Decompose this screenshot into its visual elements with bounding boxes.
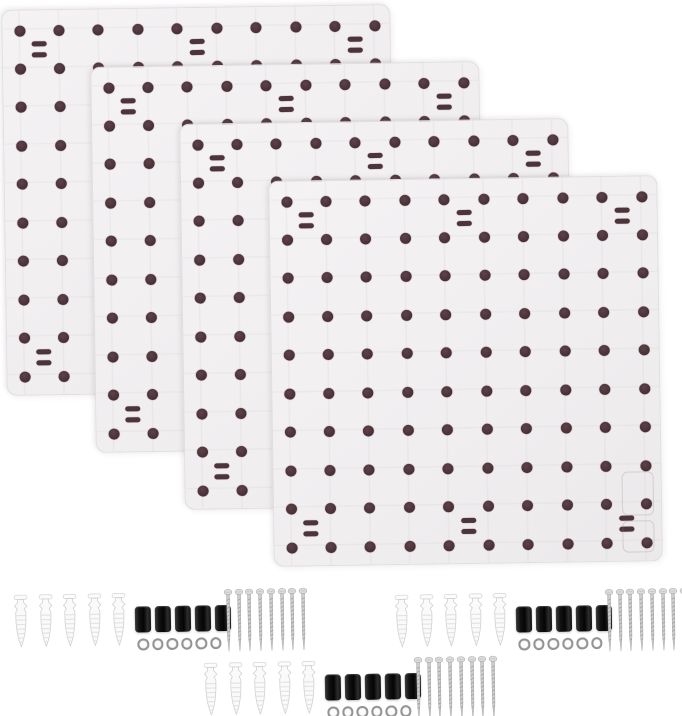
peg-hole [558,269,569,280]
peg-hole [323,388,334,399]
peg-hole [323,349,334,360]
peg-slot [437,105,452,110]
peg-hole [261,80,272,91]
spacer [365,674,381,700]
peg-hole [321,234,332,245]
peg-hole [559,307,570,318]
peg-slot [619,516,634,521]
screw [256,588,266,652]
wall-anchor [394,594,409,647]
peg-hole [600,460,611,471]
peg-hole [402,386,413,397]
washer [518,638,530,650]
washer [137,638,149,650]
peg-slot [210,156,225,161]
screw [245,589,255,653]
peg-hole [560,384,571,395]
wall-anchor [468,593,483,646]
peg-hole [193,216,204,227]
peg-hole [233,254,244,265]
peg-hole [640,460,651,471]
peg-hole [403,463,414,474]
peg-hole [521,423,532,434]
peg-hole [400,271,411,282]
peg-slot [614,208,629,213]
peg-hole [325,541,336,552]
peg-hole [340,79,351,90]
peg-hole [483,501,494,512]
peg-hole [234,331,245,342]
peg-hole [520,346,531,357]
screw [435,657,445,716]
peg-slot [190,50,205,55]
wall-anchor [492,593,507,646]
peg-hole [15,102,26,113]
peg-hole [195,370,206,381]
peg-slot [210,167,225,172]
peg-hole [562,499,573,510]
peg-hole [56,178,67,189]
peg-hole [56,217,67,228]
peg-hole [16,140,27,151]
peg-hole [601,499,612,510]
peg-hole [286,542,297,553]
peg-hole [638,345,649,356]
washer [533,638,545,650]
peg-slot [526,162,541,167]
peg-hole [404,540,415,551]
screw [288,588,298,652]
peg-hole [558,230,569,241]
peg-hole [103,120,114,131]
peg-hole [285,504,296,515]
wall-anchor [301,661,316,714]
screw [626,589,636,653]
peg-hole [458,77,469,88]
peg-slot [461,518,476,523]
peg-hole [232,215,243,226]
peg-hole [235,408,246,419]
peg-slot [457,221,472,226]
peg-hole [147,389,158,400]
peg-hole [300,79,311,90]
peg-hole [418,77,429,88]
spacer [516,606,532,632]
spacer [155,606,171,632]
peg-hole [57,255,68,266]
peg-hole [518,193,529,204]
peg-slot [215,474,230,479]
wall-anchor [203,662,218,715]
peg-hole [196,408,207,419]
peg-hole [18,294,29,305]
peg-hole [444,540,455,551]
peg-hole [192,177,203,188]
washer [591,637,603,649]
washer [385,705,397,716]
peg-hole [16,179,27,190]
mounting-kit-1 [13,586,324,659]
peg-slot [368,164,383,169]
peg-hole [598,268,609,279]
peg-hole [559,346,570,357]
spacer [385,673,401,699]
peg-hole [324,426,335,437]
peg-hole [442,424,453,435]
spacer [325,674,341,700]
peg-hole [145,235,156,246]
peg-hole [519,308,530,319]
peg-hole [53,24,64,35]
washer [166,638,178,650]
peg-slot [279,96,294,101]
spacer [556,606,572,632]
peg-hole [144,197,155,208]
peg-hole [54,101,65,112]
peg-hole [197,485,208,496]
peg-hole [194,293,205,304]
peg-hole [482,424,493,435]
peg-hole [523,539,534,550]
screw [413,657,423,716]
washer [576,637,588,649]
spacer [576,605,592,631]
peg-hole [14,63,25,74]
spacer [175,606,191,632]
peg-hole [481,385,492,396]
peg-slot [299,224,314,229]
peg-hole [195,331,206,342]
screw [478,656,488,716]
peg-hole [234,292,245,303]
peg-hole [365,541,376,552]
washer [152,638,164,650]
peg-hole [439,232,450,243]
peg-slot [457,210,472,215]
peg-hole [143,120,154,131]
peg-hole [364,464,375,475]
peg-hole [350,137,361,148]
peg-slot [36,349,51,354]
wall-anchor [443,594,458,647]
screw [615,589,625,653]
wall-anchor [277,661,292,714]
peg-hole [441,347,452,358]
peg-slot [368,153,383,158]
peg-hole [364,502,375,513]
peg-hole [142,81,153,92]
peg-hole [145,274,156,285]
molded-ridge [622,520,654,552]
peg-hole [597,230,608,241]
peg-hole [507,134,518,145]
screw [637,588,647,652]
peg-hole [196,447,207,458]
mounting-kit-3 [203,654,514,716]
peg-hole [17,217,28,228]
peg-hole [320,195,331,206]
pegboard-panel-4 [268,175,663,567]
peg-hole [132,23,143,34]
washer [400,705,412,716]
peg-slot [121,99,136,104]
peg-hole [478,193,489,204]
peg-slot [32,53,47,58]
peg-hole [360,195,371,206]
peg-hole [282,273,293,284]
peg-slot [214,463,229,468]
peg-hole [211,22,222,33]
peg-hole [283,350,294,361]
peg-hole [443,501,454,512]
peg-hole [602,537,613,548]
peg-hole [322,311,333,322]
peg-slot [347,37,362,42]
peg-hole [146,351,157,362]
screw [446,656,456,716]
washer [342,706,354,716]
peg-hole [192,139,203,150]
peg-hole [106,313,117,324]
screw [647,588,657,652]
peg-hole [232,177,243,188]
spacer [345,674,361,700]
peg-hole [290,21,301,32]
peg-hole [105,236,116,247]
screw [424,657,434,716]
peg-hole [283,311,294,322]
peg-hole [58,332,69,343]
spacer [536,606,552,632]
peg-slot [32,42,47,47]
screw [467,656,477,716]
peg-hole [637,268,648,279]
peg-hole [235,369,246,380]
peg-hole [479,232,490,243]
screw [658,588,668,652]
peg-hole [440,271,451,282]
screw [223,589,233,653]
peg-hole [518,231,529,242]
peg-hole [284,388,295,399]
peg-hole [18,333,29,344]
peg-hole [236,484,247,495]
peg-slot [299,213,314,218]
peg-hole [310,137,321,148]
peg-hole [285,465,296,476]
peg-hole [399,194,410,205]
screw [669,588,679,652]
peg-hole [231,138,242,149]
screw [604,589,614,653]
peg-hole [440,309,451,320]
peg-slot [525,151,540,156]
molded-ridge [622,471,655,515]
mounting-kit-2 [394,586,682,659]
peg-hole [519,269,530,280]
peg-hole [480,308,491,319]
peg-hole [443,463,454,474]
peg-slot [615,219,630,224]
peg-hole [400,233,411,244]
peg-slot [461,529,476,534]
screw [298,588,308,652]
peg-slot [436,94,451,99]
peg-slot [304,531,319,536]
peg-hole [483,539,494,550]
peg-hole [329,20,340,31]
peg-hole [522,462,533,473]
peg-slot [279,107,294,112]
wall-anchor [228,662,243,715]
wall-anchor [13,594,28,647]
screw [488,656,498,716]
peg-hole [360,233,371,244]
peg-hole [639,421,650,432]
peg-hole [404,502,415,513]
peg-hole [361,310,372,321]
washer [195,637,207,649]
screw [234,589,244,653]
peg-hole [172,23,183,34]
peg-slot [126,417,141,422]
peg-slot [121,110,136,115]
washer [562,638,574,650]
peg-slot [125,406,140,411]
wall-anchor [111,593,126,646]
washer [371,706,383,716]
peg-hole [271,138,282,149]
peg-hole [363,387,374,398]
washer [547,638,559,650]
peg-hole [363,426,374,437]
peg-hole [362,349,373,360]
peg-hole [547,134,558,145]
washer [356,706,368,716]
peg-hole [638,306,649,317]
peg-hole [599,384,610,395]
peg-hole [281,196,292,207]
peg-hole [480,347,491,358]
peg-hole [106,274,117,285]
peg-slot [37,360,52,365]
peg-hole [522,500,533,511]
peg-hole [560,423,571,434]
peg-hole [325,503,336,514]
peg-hole [439,194,450,205]
peg-hole [103,82,114,93]
washer [210,637,222,649]
wall-anchor [252,662,267,715]
peg-hole [403,425,414,436]
peg-hole [107,351,118,362]
washer [327,706,339,716]
peg-hole [55,140,66,151]
peg-hole [520,385,531,396]
peg-hole [17,256,28,267]
peg-hole [93,24,104,35]
peg-slot [348,48,363,53]
peg-hole [479,270,490,281]
peg-slot [190,39,205,44]
peg-hole [58,370,69,381]
peg-hole [105,197,116,208]
screw [277,588,287,652]
peg-hole [107,390,118,401]
peg-hole [636,229,647,240]
peg-hole [639,383,650,394]
peg-slot [303,520,318,525]
peg-hole [143,158,154,169]
peg-hole [236,446,247,457]
wall-anchor [87,593,102,646]
peg-hole [636,191,647,202]
peg-hole [369,20,380,31]
peg-hole [379,78,390,89]
washer [181,638,193,650]
peg-hole [251,22,262,33]
peg-hole [401,348,412,359]
peg-hole [14,25,25,36]
screw [456,656,466,716]
spacer [195,605,211,631]
wall-anchor [62,594,77,647]
product-image [0,0,682,716]
peg-hole [146,312,157,323]
peg-hole [482,462,493,473]
peg-hole [57,294,68,305]
wall-anchor [419,594,434,647]
peg-hole [441,386,452,397]
peg-hole [284,427,295,438]
peg-hole [281,234,292,245]
peg-hole [557,192,568,203]
peg-hole [54,63,65,74]
peg-hole [147,427,158,438]
peg-hole [599,345,610,356]
peg-hole [221,80,232,91]
peg-hole [321,272,332,283]
peg-hole [561,461,572,472]
peg-hole [389,136,400,147]
peg-hole [596,191,607,202]
peg-hole [598,307,609,318]
peg-hole [104,159,115,170]
peg-hole [182,81,193,92]
peg-hole [468,135,479,146]
peg-hole [401,310,412,321]
screw [266,588,276,652]
peg-hole [562,538,573,549]
peg-hole [108,428,119,439]
peg-hole [429,136,440,147]
peg-hole [19,371,30,382]
peg-hole [324,465,335,476]
peg-hole [600,422,611,433]
wall-anchor [38,594,53,647]
peg-hole [194,254,205,265]
spacer [135,606,151,632]
peg-hole [361,272,372,283]
